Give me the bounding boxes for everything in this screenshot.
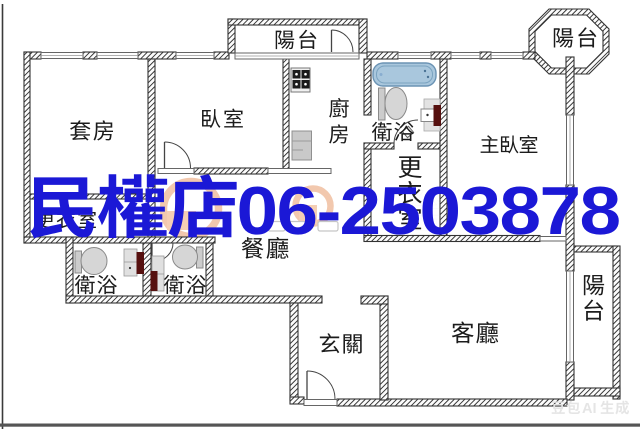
svg-text:AI: AI — [582, 401, 597, 417]
